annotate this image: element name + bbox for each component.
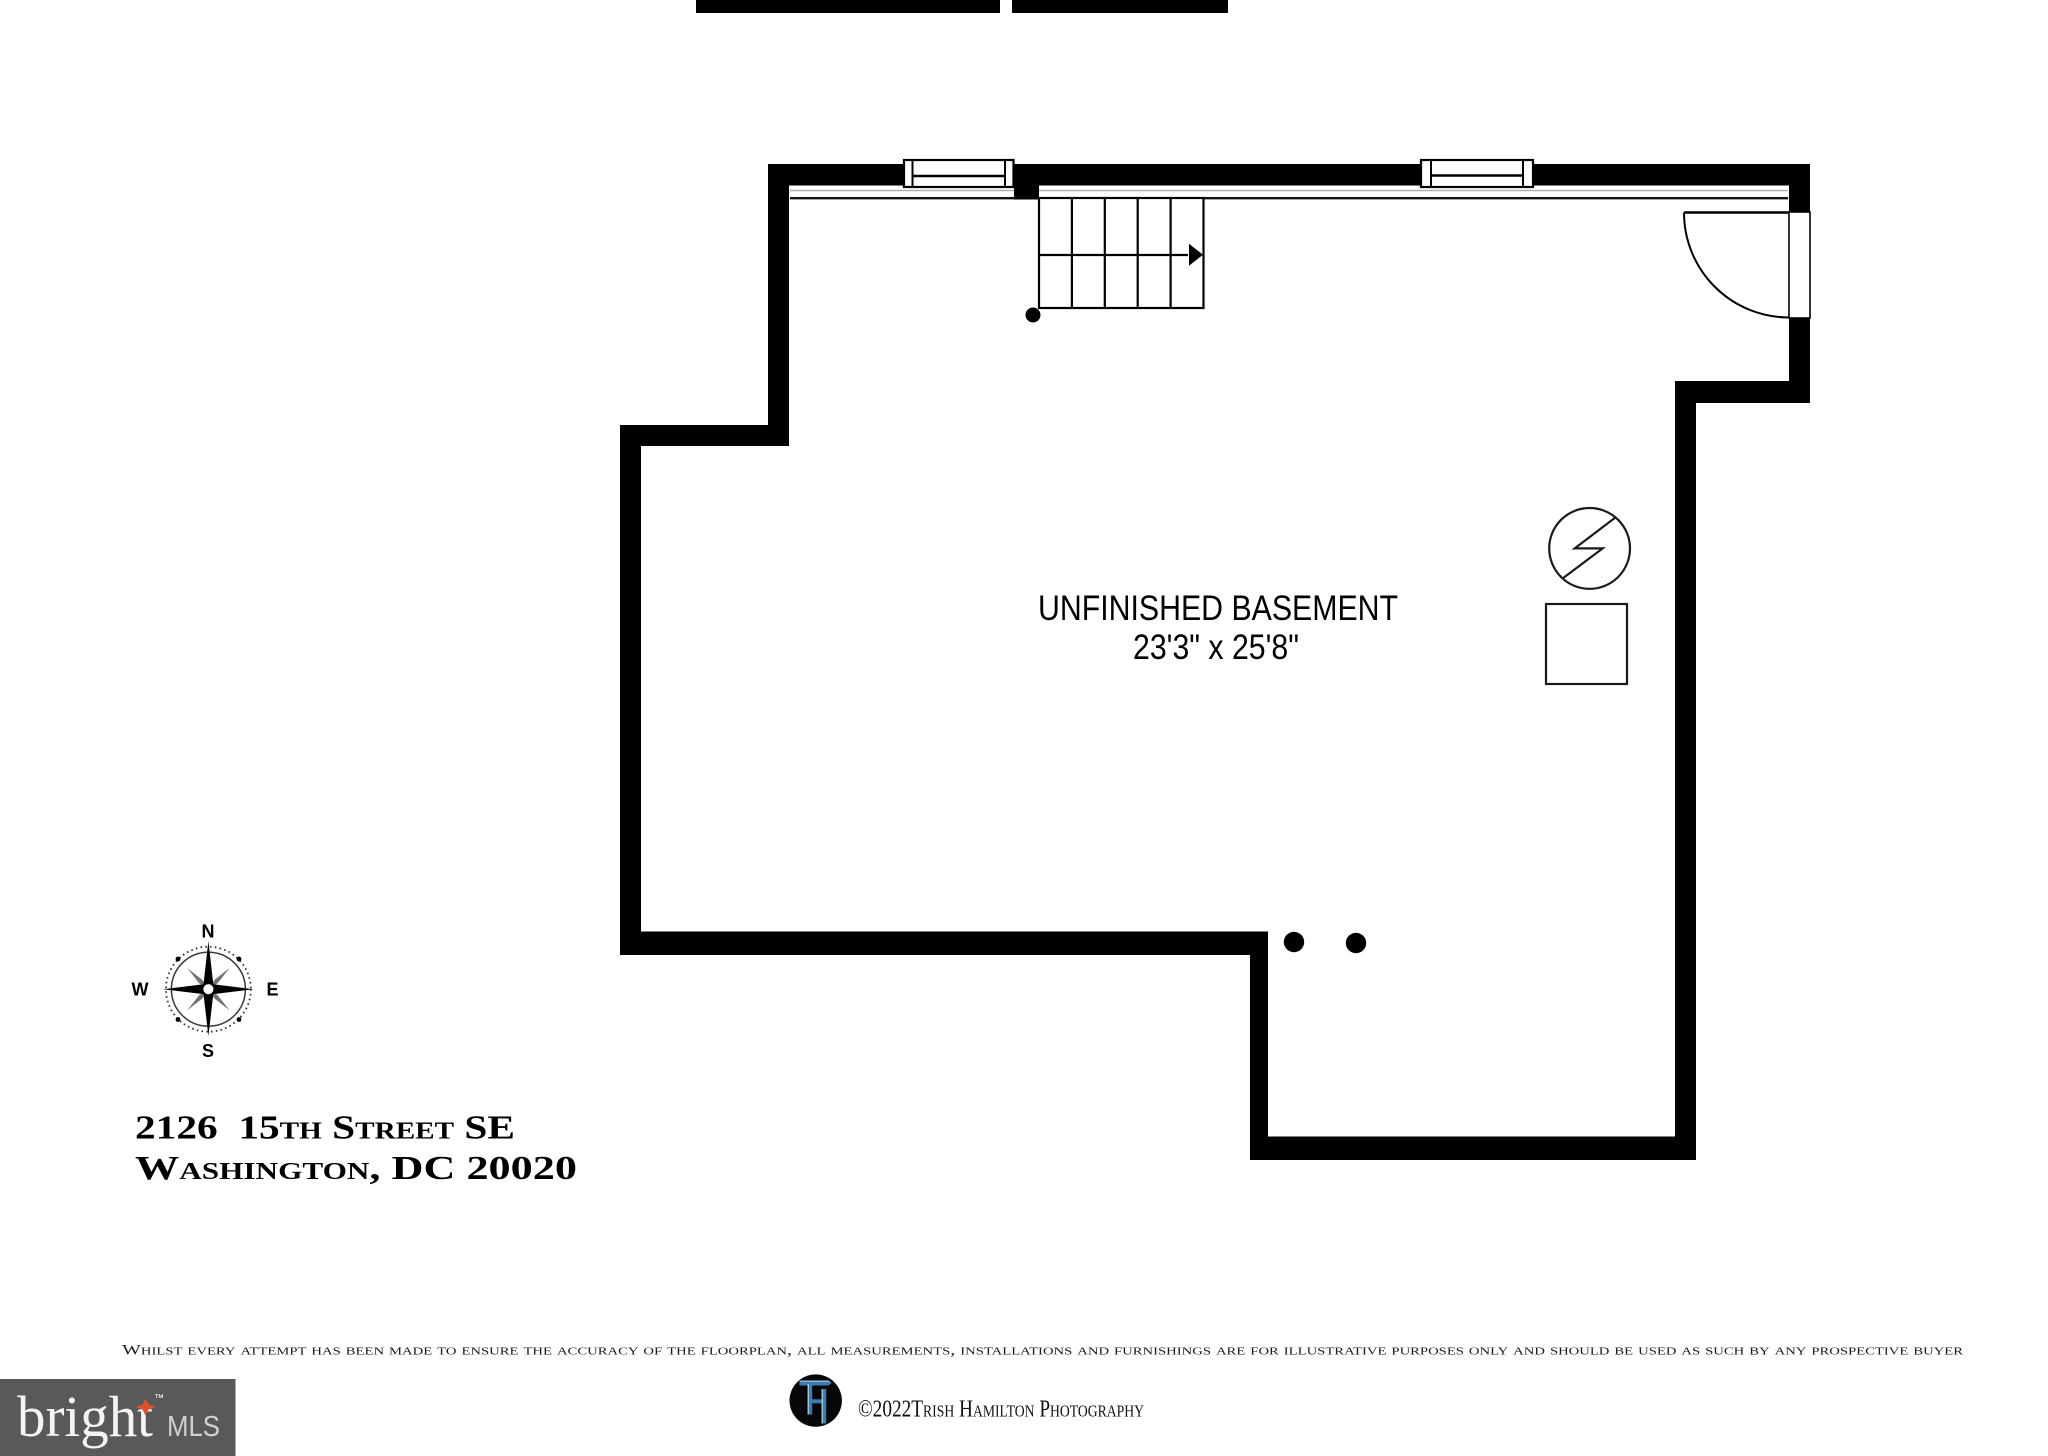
svg-text:UNFINISHED BASEMENT: UNFINISHED BASEMENT (1038, 589, 1398, 628)
svg-text:™: ™ (154, 1393, 164, 1404)
svg-text:S: S (202, 1041, 214, 1061)
svg-text:W: W (132, 980, 149, 1000)
svg-text:2126 15th Street SE: 2126 15th Street SE (135, 1110, 515, 1147)
svg-text:Whilst every attempt has been: Whilst every attempt has been made to en… (122, 1343, 1964, 1359)
svg-text:E: E (266, 980, 278, 1000)
svg-text:Washington, DC 20020: Washington, DC 20020 (135, 1150, 577, 1187)
svg-text:bright: bright (17, 1384, 153, 1449)
svg-text:23'3" x 25'8": 23'3" x 25'8" (1133, 628, 1299, 667)
svg-text:©2022Trish Hamilton Photograph: ©2022Trish Hamilton Photography (858, 1397, 1144, 1423)
svg-text:N: N (202, 922, 215, 942)
svg-text:MLS: MLS (167, 1411, 220, 1443)
